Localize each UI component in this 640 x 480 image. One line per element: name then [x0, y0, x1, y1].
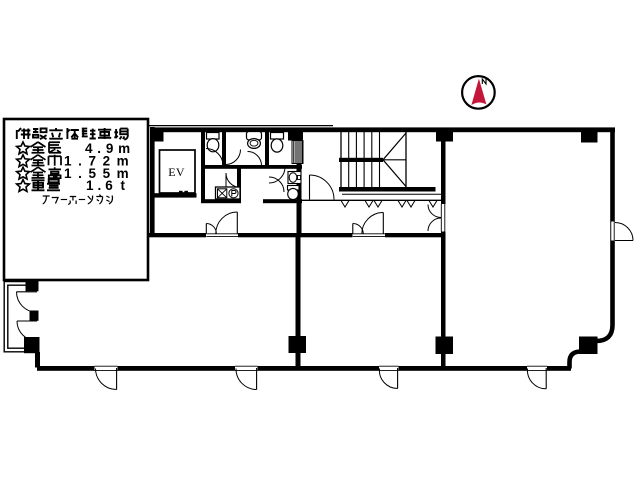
svg-text:t: t [121, 178, 126, 193]
svg-text:1.6: 1.6 [86, 178, 117, 193]
svg-text:EV: EV [168, 165, 185, 179]
